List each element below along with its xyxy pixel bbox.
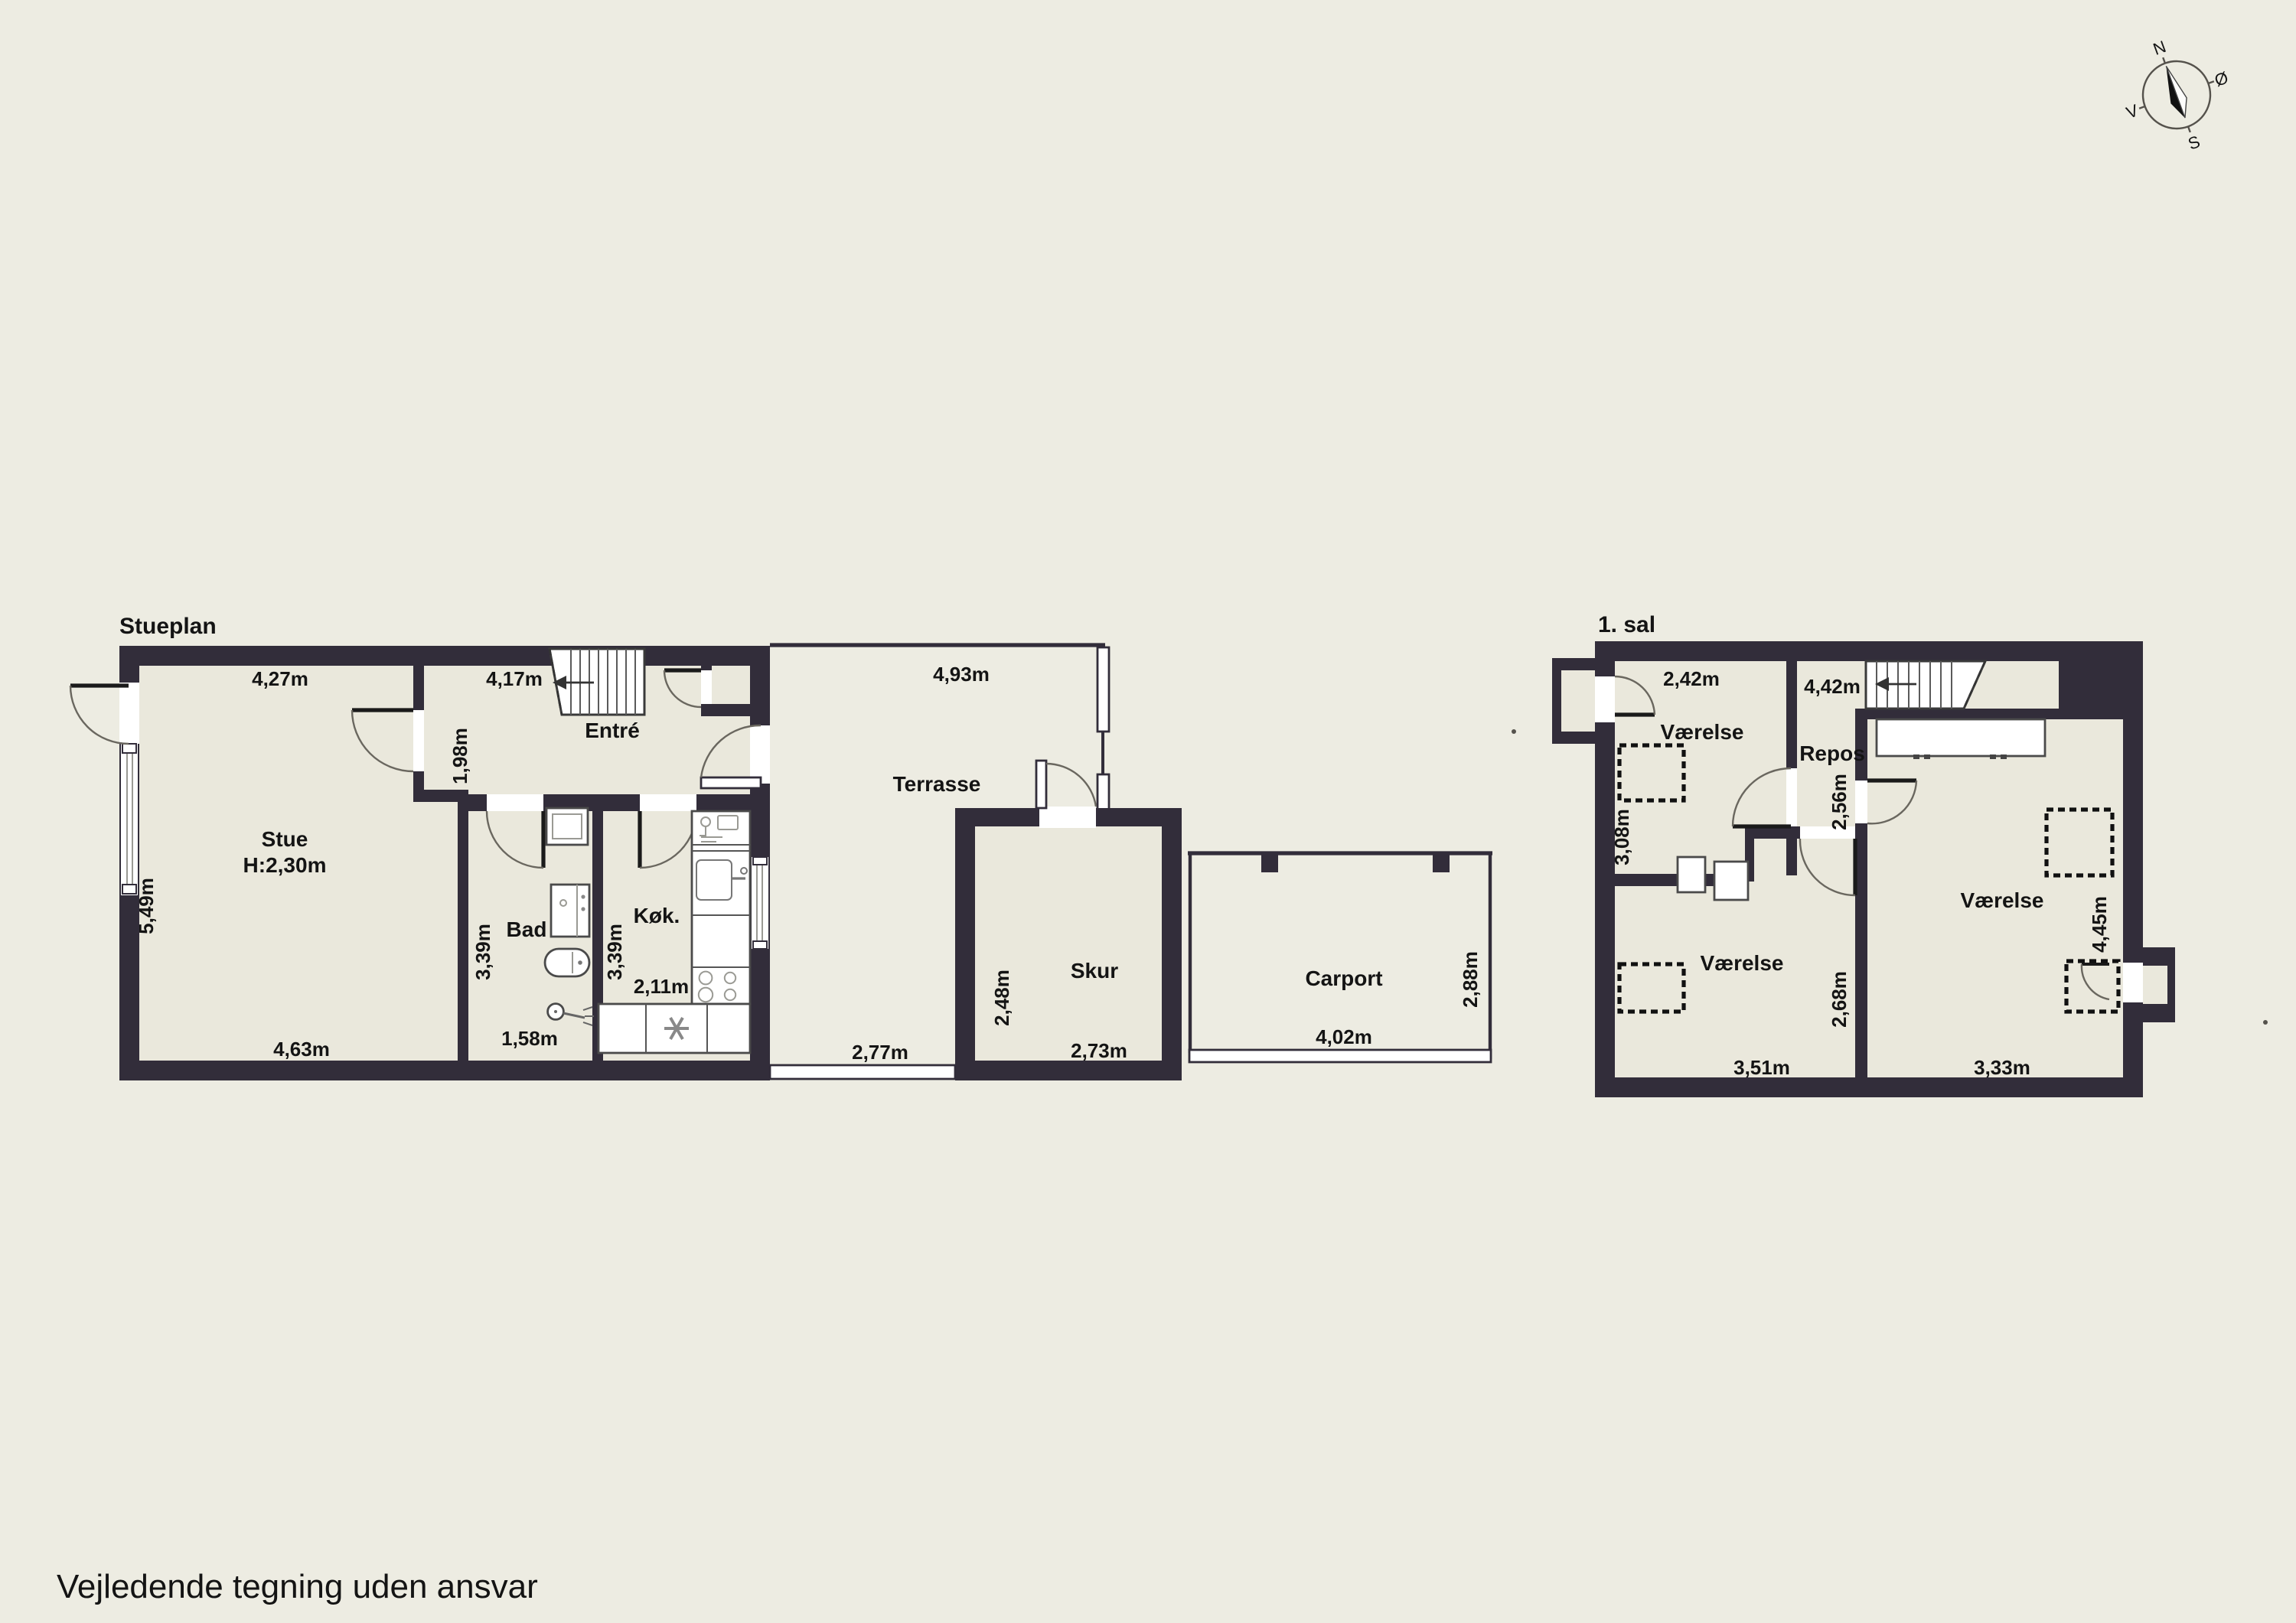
- room-label-skur: Skur: [1071, 959, 1118, 983]
- front-door-opening: [119, 683, 139, 744]
- stue-door-opening: [413, 710, 424, 771]
- washing-machine-icon: [546, 808, 588, 845]
- carport-post: [1261, 852, 1278, 872]
- stairs-ground: [550, 649, 644, 715]
- stueplan-title: Stueplan: [119, 614, 217, 639]
- dim-v3-height: 4,45m: [2088, 896, 2111, 953]
- kitchen-window: [752, 857, 768, 949]
- dim-entre-top: 4,17m: [486, 667, 543, 690]
- v3-door-opening: [1855, 781, 1867, 823]
- dim-v2-height: 2,68m: [1828, 971, 1851, 1028]
- reference-dot: [2263, 1020, 2268, 1025]
- wardrobe: [1877, 719, 2045, 756]
- compass-n: N: [2151, 37, 2168, 59]
- dormer-window-opening: [2123, 963, 2143, 1002]
- dim-skur-height: 2,48m: [990, 970, 1013, 1026]
- dim-entre-passage: 1,98m: [448, 728, 471, 784]
- room-label-terrasse: Terrasse: [893, 772, 981, 796]
- dim-terrasse-bottom: 2,77m: [852, 1041, 908, 1064]
- compass-e: Ø: [2212, 68, 2231, 90]
- floorplan-page: Stueplan: [0, 0, 2296, 1623]
- reference-dot: [1512, 729, 1516, 734]
- cabinet: [1678, 857, 1705, 892]
- room-label-vaerelse2: Værelse: [1701, 951, 1784, 975]
- dim-skur-width: 2,73m: [1071, 1039, 1127, 1062]
- firstfloor-plan: 1. sal: [1552, 612, 2175, 1097]
- compass-s: S: [2186, 132, 2203, 154]
- disclaimer-text: Vejledende tegning uden ansvar: [57, 1568, 538, 1605]
- dim-stue-bottom: 4,63m: [273, 1038, 330, 1061]
- carport-area: Carport 2,88m 4,02m: [1188, 852, 1492, 1062]
- bad-door-opening: [487, 794, 543, 811]
- skur-door: [1036, 761, 1096, 808]
- dim-repos-top: 4,42m: [1804, 675, 1861, 698]
- stueplan-floor: [139, 666, 750, 1061]
- dim-v1-top: 2,42m: [1663, 667, 1720, 690]
- toilet-icon: [545, 949, 589, 976]
- room-label-kok: Køk.: [634, 904, 680, 927]
- dim-repos-height: 2,56m: [1828, 774, 1851, 830]
- firstfloor-title: 1. sal: [1598, 612, 1655, 637]
- firstfloor-landing: [1552, 658, 1595, 744]
- v1-entry-opening: [1595, 676, 1615, 722]
- stue-window: [121, 744, 138, 895]
- closet-door-opening: [701, 670, 712, 704]
- dim-kok-height: 3,39m: [603, 924, 626, 980]
- compass-rose: N Ø S V: [2106, 21, 2248, 170]
- dim-carport-height: 2,88m: [1459, 951, 1482, 1008]
- skur-door-opening: [1039, 807, 1096, 828]
- room-label-vaerelse3: Værelse: [1961, 888, 2044, 912]
- dim-v3-width: 3,33m: [1974, 1056, 2030, 1079]
- room-label-bad: Bad: [507, 917, 547, 941]
- stueplan-plan: Stueplan: [70, 614, 770, 1080]
- dim-v2-width: 3,51m: [1733, 1056, 1790, 1079]
- room-label-entre: Entré: [585, 719, 640, 742]
- dim-terrasse-top: 4,93m: [933, 663, 990, 686]
- terrasse-door-opening: [750, 725, 770, 784]
- dim-kok-width: 2,11m: [634, 975, 689, 998]
- room-label-repos: Repos: [1799, 741, 1865, 765]
- dim-stue-top: 4,27m: [252, 667, 308, 690]
- skur-building: Skur 2,48m 2,73m: [955, 761, 1182, 1080]
- dim-bad-width: 1,58m: [501, 1027, 558, 1050]
- stairs-firstfloor: [1866, 661, 1985, 709]
- dim-stue-left: 5,49m: [135, 878, 158, 934]
- dormer: [2143, 947, 2175, 1022]
- dim-stue-ceiling: H:2,30m: [243, 853, 327, 877]
- dim-bad-height: 3,39m: [471, 924, 494, 980]
- dim-carport-width: 4,02m: [1316, 1025, 1372, 1048]
- bathroom-sink-icon: [551, 885, 589, 937]
- room-label-stue: Stue: [262, 827, 308, 851]
- compass-v: V: [2124, 100, 2141, 122]
- cabinet: [1714, 862, 1748, 900]
- v1-door-opening: [1786, 768, 1797, 826]
- kok-door-opening: [640, 794, 696, 811]
- dim-v1-left: 3,08m: [1610, 809, 1633, 865]
- carport-post: [1433, 852, 1450, 872]
- room-label-vaerelse1: Værelse: [1661, 720, 1744, 744]
- floorplan-drawing: Stueplan: [0, 0, 2296, 1623]
- room-label-carport: Carport: [1305, 966, 1382, 990]
